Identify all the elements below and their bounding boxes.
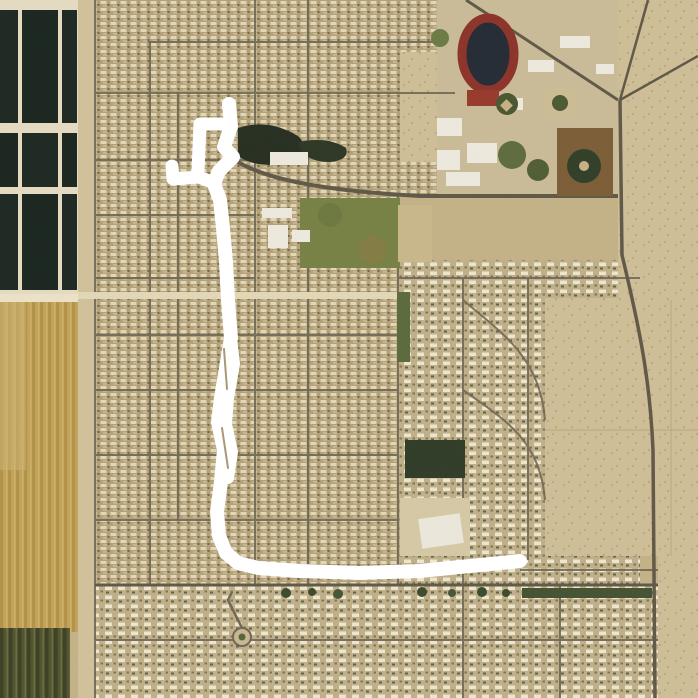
satellite-map[interactable] bbox=[0, 0, 698, 698]
map-canvas bbox=[0, 0, 698, 698]
photo-grain-overlay bbox=[0, 0, 698, 698]
